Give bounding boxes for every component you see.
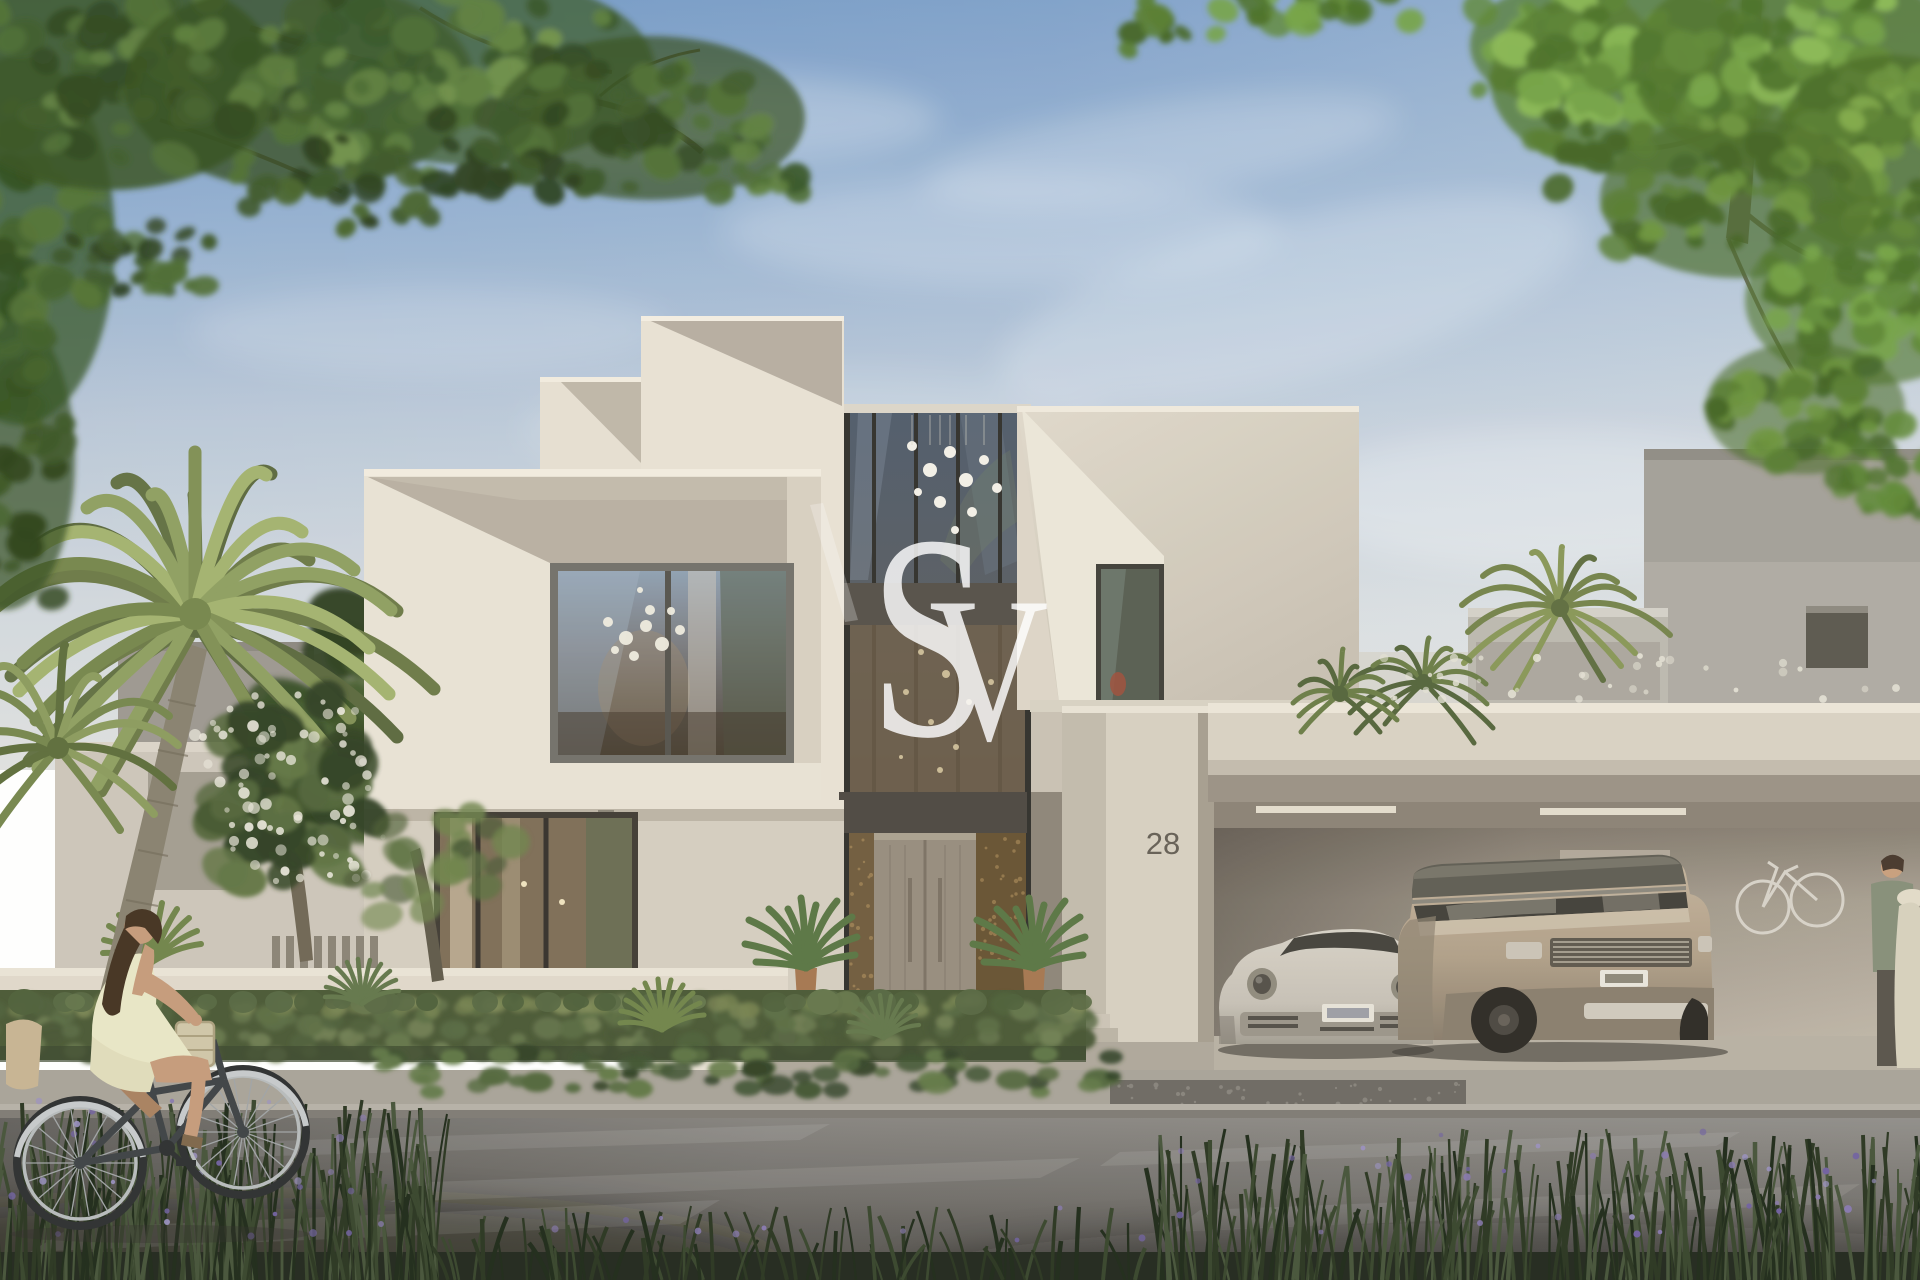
- svg-text:V: V: [929, 555, 1049, 785]
